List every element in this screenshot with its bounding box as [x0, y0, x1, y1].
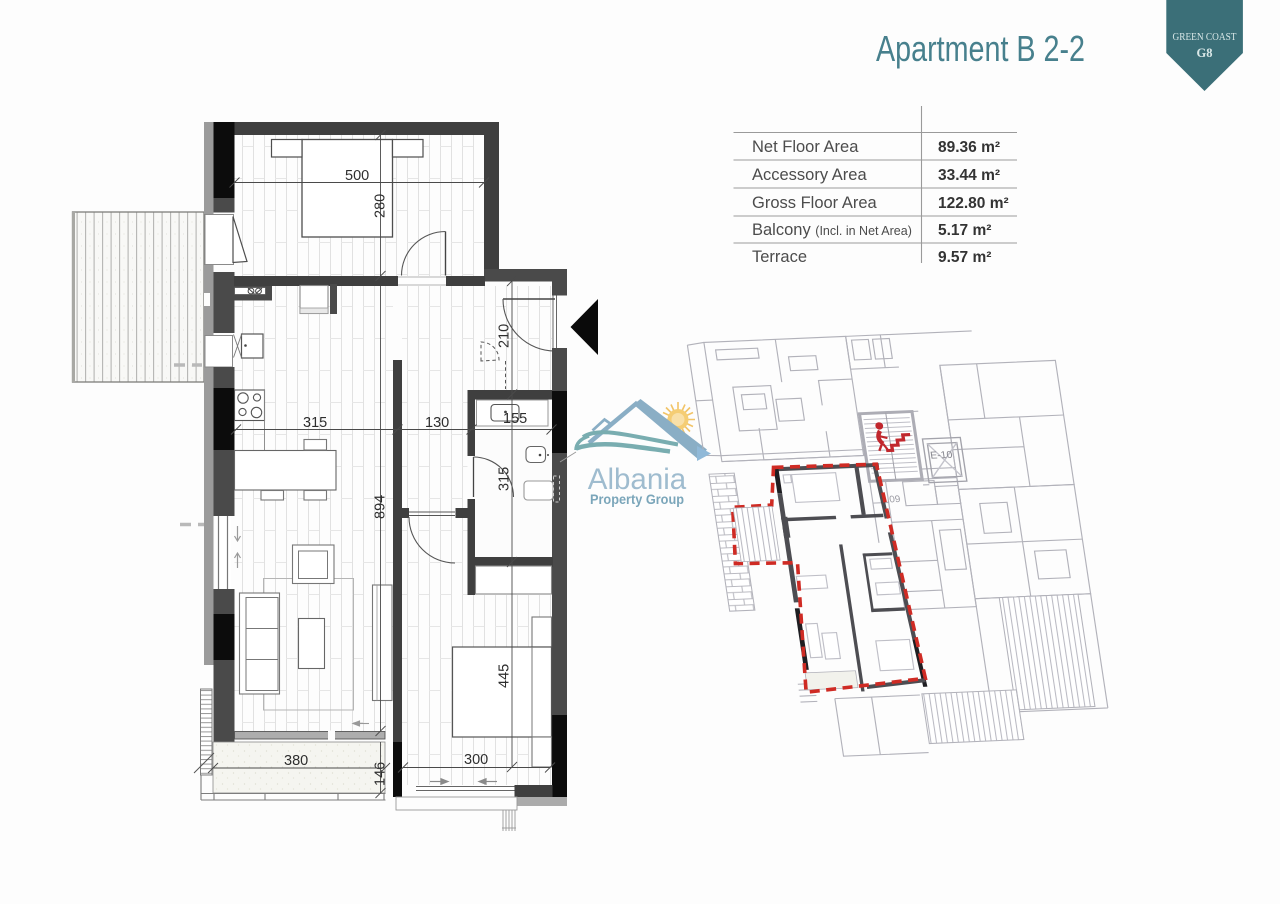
svg-text:9.57 m²: 9.57 m² [938, 249, 991, 266]
svg-text:500: 500 [345, 168, 369, 184]
svg-text:130: 130 [425, 415, 449, 431]
svg-text:122.80 m²: 122.80 m² [938, 195, 1009, 212]
svg-text:380: 380 [284, 753, 308, 769]
svg-text:894: 894 [373, 495, 389, 519]
svg-text:Apartment B 2-2: Apartment B 2-2 [876, 28, 1085, 69]
svg-text:155: 155 [503, 411, 527, 427]
svg-text:315: 315 [303, 415, 327, 431]
svg-text:E-10: E-10 [930, 450, 954, 462]
svg-text:GREEN COAST: GREEN COAST [1173, 32, 1238, 43]
svg-text:33.44 m²: 33.44 m² [938, 167, 1000, 184]
svg-text:210: 210 [497, 324, 513, 348]
svg-text:146: 146 [373, 762, 389, 786]
svg-text:315: 315 [497, 467, 513, 491]
svg-text:G8: G8 [1197, 46, 1213, 60]
svg-text:300: 300 [464, 752, 488, 768]
svg-text:Balcony (Incl. in Net Area): Balcony (Incl. in Net Area) [752, 221, 912, 239]
svg-text:445: 445 [497, 664, 513, 688]
svg-text:Gross Floor Area: Gross Floor Area [752, 194, 878, 212]
svg-text:89.36 m²: 89.36 m² [938, 139, 1000, 156]
svg-text:Net Floor Area: Net Floor Area [752, 138, 859, 156]
svg-text:Terrace: Terrace [752, 248, 807, 266]
svg-text:Accessory Area: Accessory Area [752, 166, 867, 184]
svg-text:Property Group: Property Group [590, 491, 684, 507]
svg-text:5.17 m²: 5.17 m² [938, 222, 991, 239]
svg-text:280: 280 [373, 194, 389, 218]
